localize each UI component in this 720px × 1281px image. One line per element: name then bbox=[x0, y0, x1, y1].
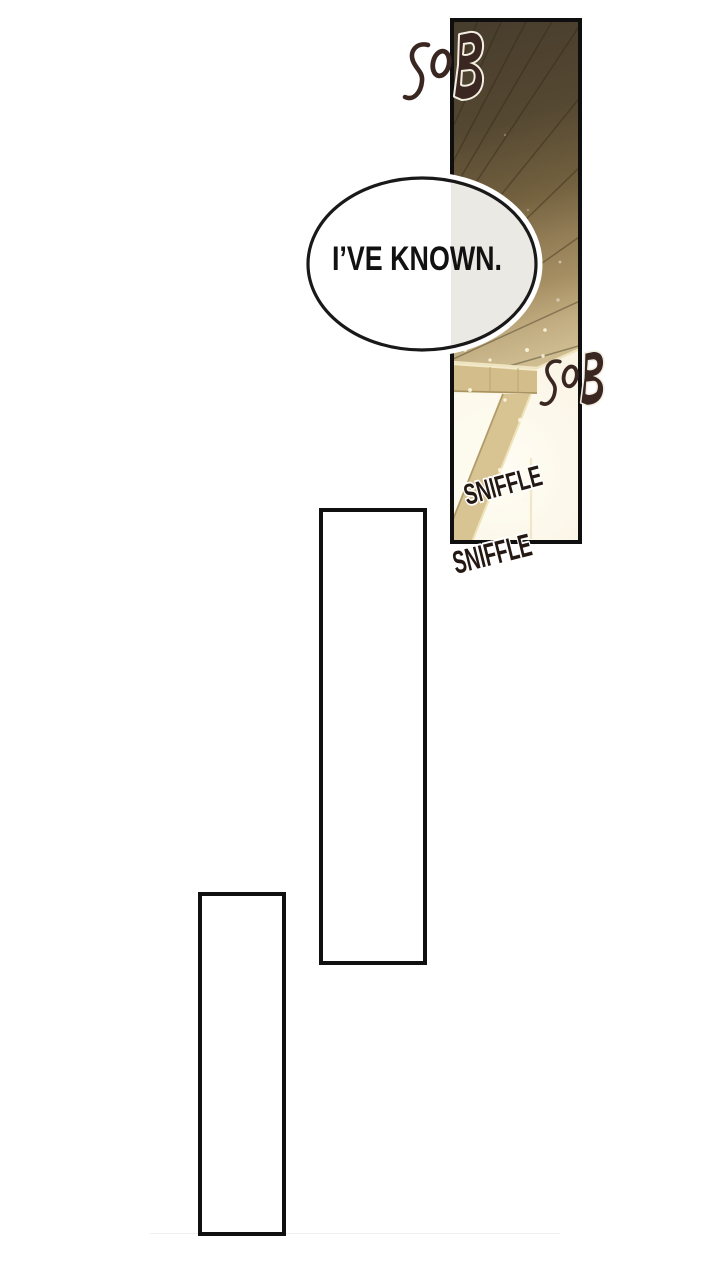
svg-text:I’VE KNOWN.: I’VE KNOWN. bbox=[332, 240, 502, 278]
